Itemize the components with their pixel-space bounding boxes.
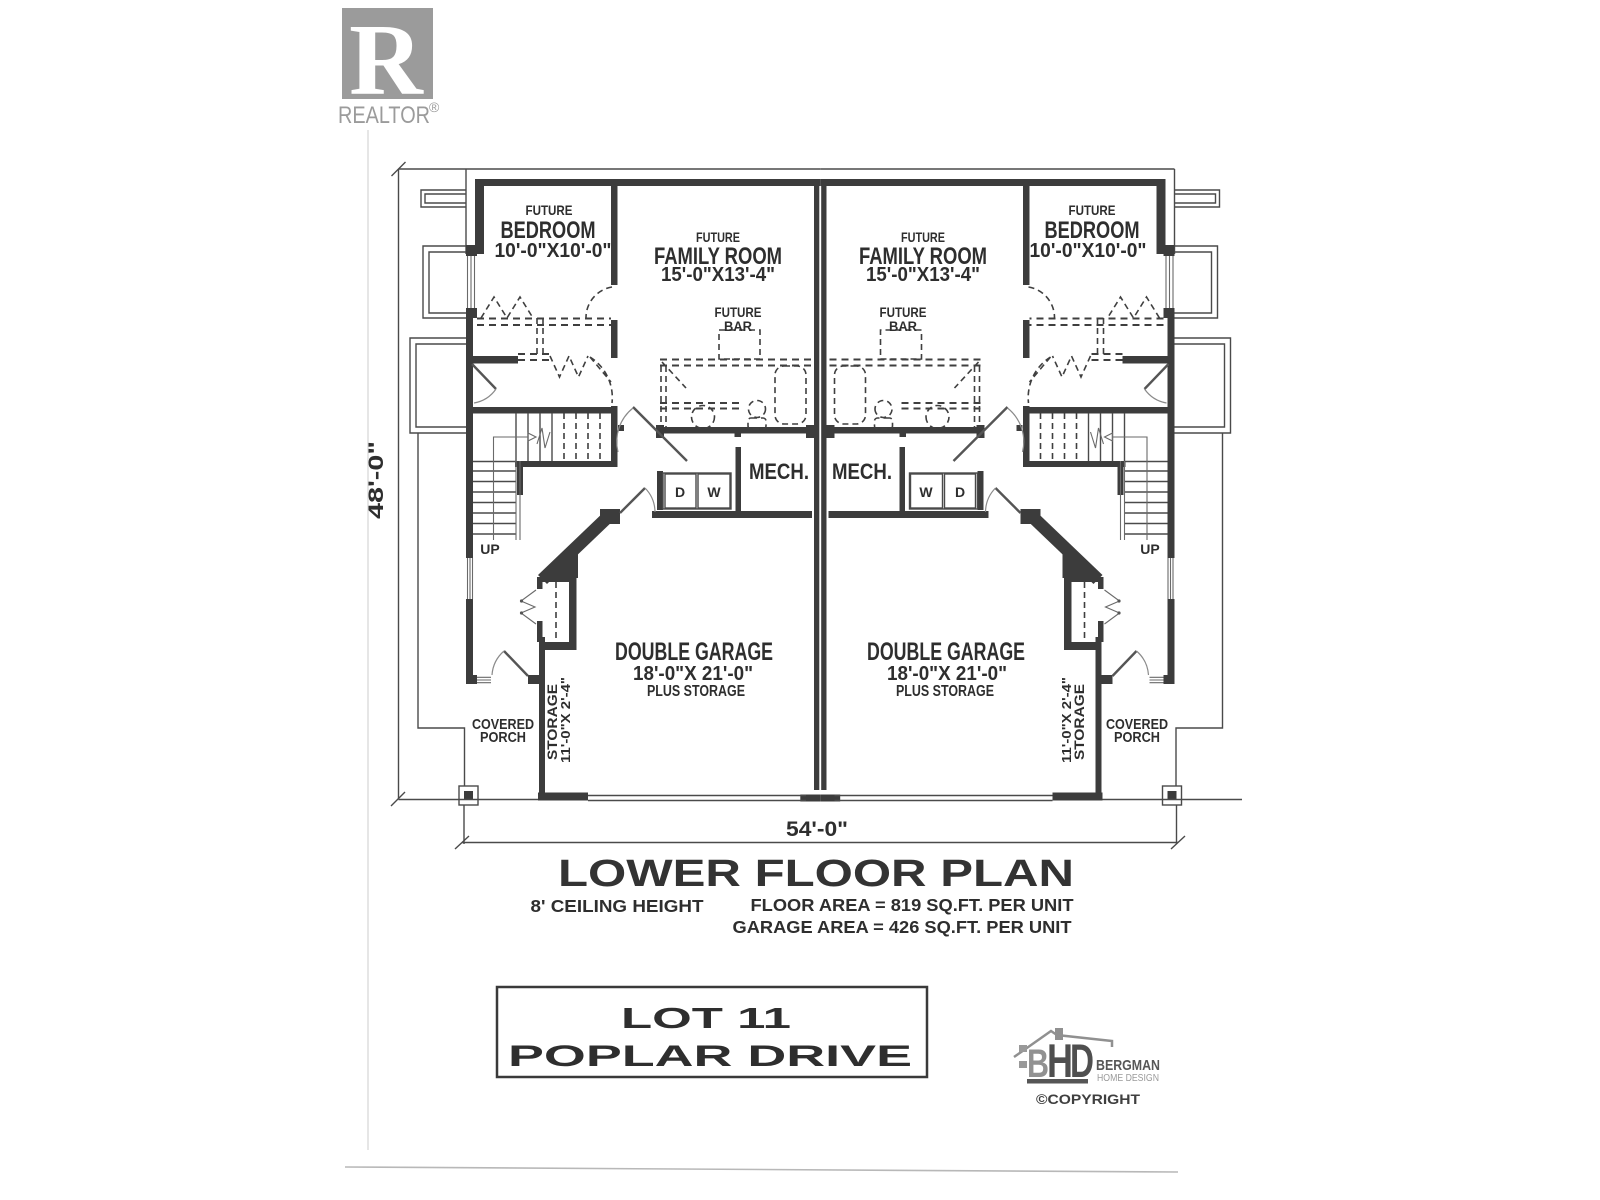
svg-text:18'-0"X 21'-0": 18'-0"X 21'-0"	[633, 663, 753, 685]
svg-text:POPLAR DRIVE: POPLAR DRIVE	[508, 1040, 912, 1073]
svg-text:18'-0"X 21'-0": 18'-0"X 21'-0"	[887, 663, 1007, 685]
svg-text:BAR: BAR	[889, 319, 917, 334]
svg-text:48'-0": 48'-0"	[365, 441, 388, 519]
svg-text:UP: UP	[1140, 541, 1159, 557]
svg-text:BAR: BAR	[724, 319, 752, 334]
svg-text:11'-0"X 2'-4": 11'-0"X 2'-4"	[558, 677, 573, 763]
svg-text:D: D	[955, 484, 965, 500]
svg-text:DOUBLE GARAGE: DOUBLE GARAGE	[867, 638, 1025, 666]
svg-text:15'-0"X13'-4": 15'-0"X13'-4"	[866, 264, 980, 286]
svg-text:MECH.: MECH.	[749, 459, 809, 484]
svg-text:FUTURE: FUTURE	[880, 305, 927, 320]
svg-text:15'-0"X13'-4": 15'-0"X13'-4"	[661, 264, 775, 286]
svg-text:PORCH: PORCH	[1114, 729, 1160, 746]
svg-text:FLOOR AREA = 819 SQ.FT. PER UN: FLOOR AREA = 819 SQ.FT. PER UNIT	[751, 895, 1074, 915]
svg-text:PORCH: PORCH	[480, 729, 526, 746]
svg-text:FUTURE: FUTURE	[1069, 202, 1116, 218]
svg-text:FUTURE: FUTURE	[715, 305, 762, 320]
svg-text:GARAGE AREA = 426 SQ.FT. PER U: GARAGE AREA = 426 SQ.FT. PER UNIT	[733, 917, 1072, 937]
svg-text:W: W	[919, 484, 933, 500]
svg-text:FUTURE: FUTURE	[526, 202, 573, 218]
svg-text:54'-0": 54'-0"	[786, 818, 848, 841]
svg-text:REALTOR: REALTOR	[338, 102, 430, 129]
svg-text:D: D	[675, 484, 685, 500]
svg-text:©COPYRIGHT: ©COPYRIGHT	[1036, 1091, 1140, 1107]
svg-text:UP: UP	[480, 541, 499, 557]
svg-text:10'-0"X10'-0": 10'-0"X10'-0"	[1030, 240, 1147, 262]
svg-text:10'-0"X10'-0": 10'-0"X10'-0"	[495, 240, 612, 262]
svg-text:®: ®	[429, 99, 440, 115]
svg-text:DOUBLE GARAGE: DOUBLE GARAGE	[615, 638, 773, 666]
svg-text:HOME DESIGN: HOME DESIGN	[1097, 1072, 1159, 1084]
svg-text:8' CEILING HEIGHT: 8' CEILING HEIGHT	[531, 896, 704, 916]
svg-text:R: R	[349, 4, 424, 117]
svg-text:LOWER FLOOR PLAN: LOWER FLOOR PLAN	[558, 853, 1074, 895]
svg-text:LOT 11: LOT 11	[621, 1003, 791, 1035]
svg-text:PLUS STORAGE: PLUS STORAGE	[896, 683, 994, 700]
svg-text:MECH.: MECH.	[832, 459, 892, 484]
svg-text:11'-0"X 2'-4": 11'-0"X 2'-4"	[1059, 677, 1074, 763]
svg-text:W: W	[707, 484, 721, 500]
svg-text:PLUS STORAGE: PLUS STORAGE	[647, 683, 745, 700]
